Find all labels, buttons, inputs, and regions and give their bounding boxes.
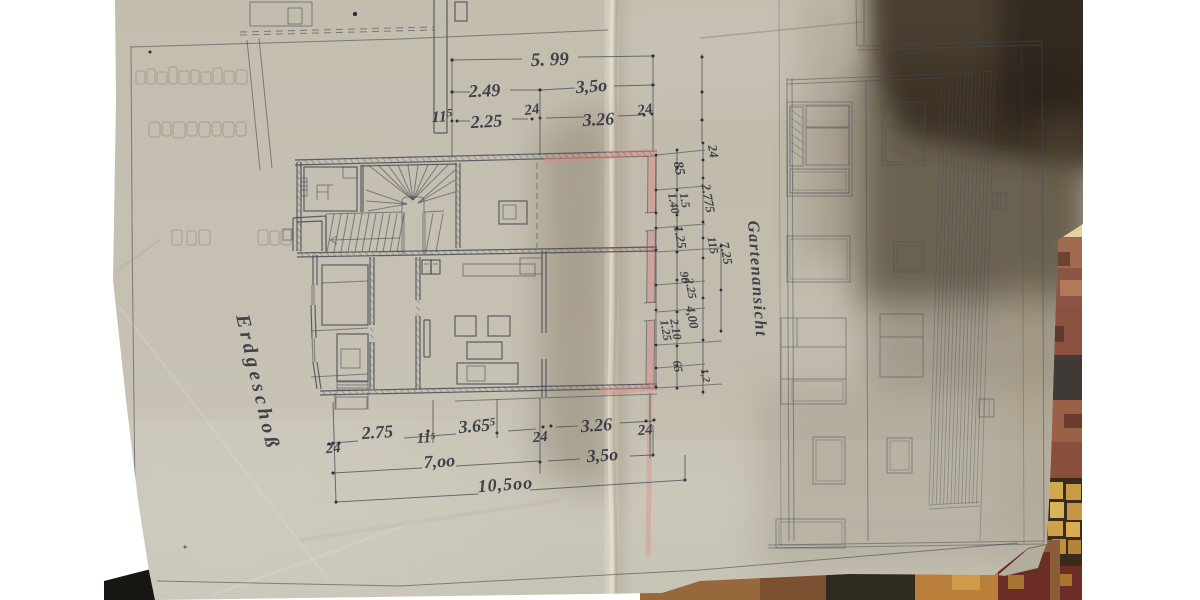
svg-text:24: 24 xyxy=(635,101,654,119)
svg-text:65: 65 xyxy=(670,359,686,373)
svg-text:7,oo: 7,oo xyxy=(423,450,456,472)
svg-text:2.49: 2.49 xyxy=(467,80,500,101)
svg-text:10,5oo: 10,5oo xyxy=(477,472,534,496)
svg-text:3.26: 3.26 xyxy=(579,414,613,436)
svg-text:3,5o: 3,5o xyxy=(585,444,619,466)
svg-text:1,2: 1,2 xyxy=(698,368,712,384)
svg-text:24: 24 xyxy=(636,422,654,439)
svg-text:2.25: 2.25 xyxy=(469,110,503,132)
svg-text:5. 99: 5. 99 xyxy=(530,49,569,71)
svg-text:24: 24 xyxy=(522,101,541,119)
svg-text:2.75: 2.75 xyxy=(360,421,394,443)
svg-text:3.26: 3.26 xyxy=(581,108,615,130)
svg-text:24: 24 xyxy=(324,440,342,457)
svg-text:3,5o: 3,5o xyxy=(574,75,608,97)
svg-text:85: 85 xyxy=(670,160,687,176)
